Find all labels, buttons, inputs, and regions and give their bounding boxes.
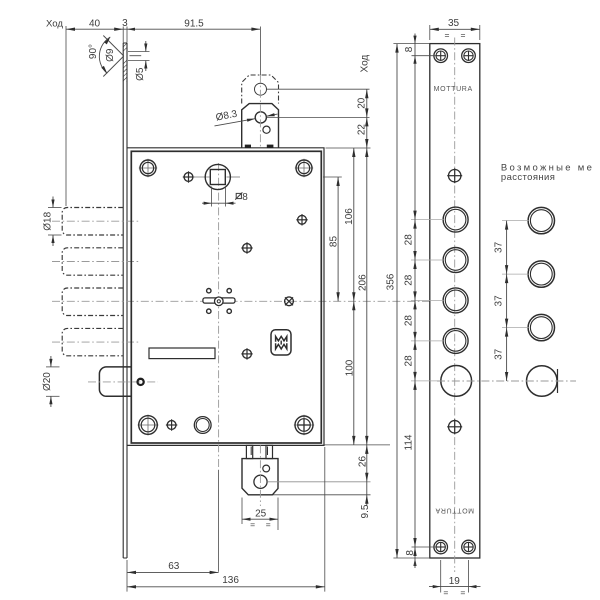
svg-text:Ø5: Ø5 — [135, 67, 146, 81]
svg-text:37: 37 — [494, 295, 505, 307]
svg-text:106: 106 — [344, 208, 355, 225]
svg-text:=: = — [443, 587, 448, 597]
svg-text:28: 28 — [403, 355, 414, 367]
svg-text:8: 8 — [404, 46, 415, 52]
svg-text:28: 28 — [403, 274, 414, 286]
svg-text:8: 8 — [405, 550, 416, 556]
svg-text:расстояния: расстояния — [501, 172, 555, 183]
svg-text:25: 25 — [255, 509, 267, 520]
svg-text:9.5: 9.5 — [360, 504, 371, 518]
svg-text:28: 28 — [403, 315, 414, 327]
svg-text:=: = — [461, 30, 466, 40]
svg-text:=: = — [460, 587, 465, 597]
svg-text:=: = — [445, 30, 450, 40]
svg-text:37: 37 — [494, 348, 505, 360]
svg-text:=: = — [250, 520, 255, 530]
svg-text:26: 26 — [357, 456, 368, 468]
svg-text:206: 206 — [357, 274, 368, 291]
svg-text:=: = — [266, 520, 271, 530]
svg-text:8: 8 — [242, 192, 248, 203]
svg-text:Ход: Ход — [46, 18, 63, 29]
svg-text:20: 20 — [357, 97, 368, 109]
svg-text:100: 100 — [345, 359, 356, 376]
svg-text:40: 40 — [89, 18, 101, 29]
svg-text:Ø18: Ø18 — [43, 211, 54, 230]
svg-text:22: 22 — [357, 124, 368, 136]
svg-text:114: 114 — [404, 434, 415, 450]
svg-text:35: 35 — [448, 18, 460, 29]
svg-text:28: 28 — [403, 234, 414, 246]
svg-text:356: 356 — [385, 273, 396, 290]
svg-text:MOTTURA: MOTTURA — [434, 86, 473, 93]
svg-text:Ø20: Ø20 — [42, 372, 53, 391]
svg-text:Ø9: Ø9 — [105, 48, 116, 62]
svg-text:63: 63 — [168, 561, 180, 572]
svg-text:MOTTURA: MOTTURA — [435, 507, 474, 514]
svg-text:90°: 90° — [88, 44, 99, 59]
svg-text:Ход: Ход — [360, 55, 371, 73]
svg-text:19: 19 — [449, 576, 461, 587]
svg-text:85: 85 — [329, 236, 340, 248]
svg-text:136: 136 — [222, 575, 239, 586]
svg-text:3: 3 — [122, 18, 128, 29]
svg-text:91.5: 91.5 — [184, 18, 204, 29]
svg-text:37: 37 — [494, 241, 505, 253]
